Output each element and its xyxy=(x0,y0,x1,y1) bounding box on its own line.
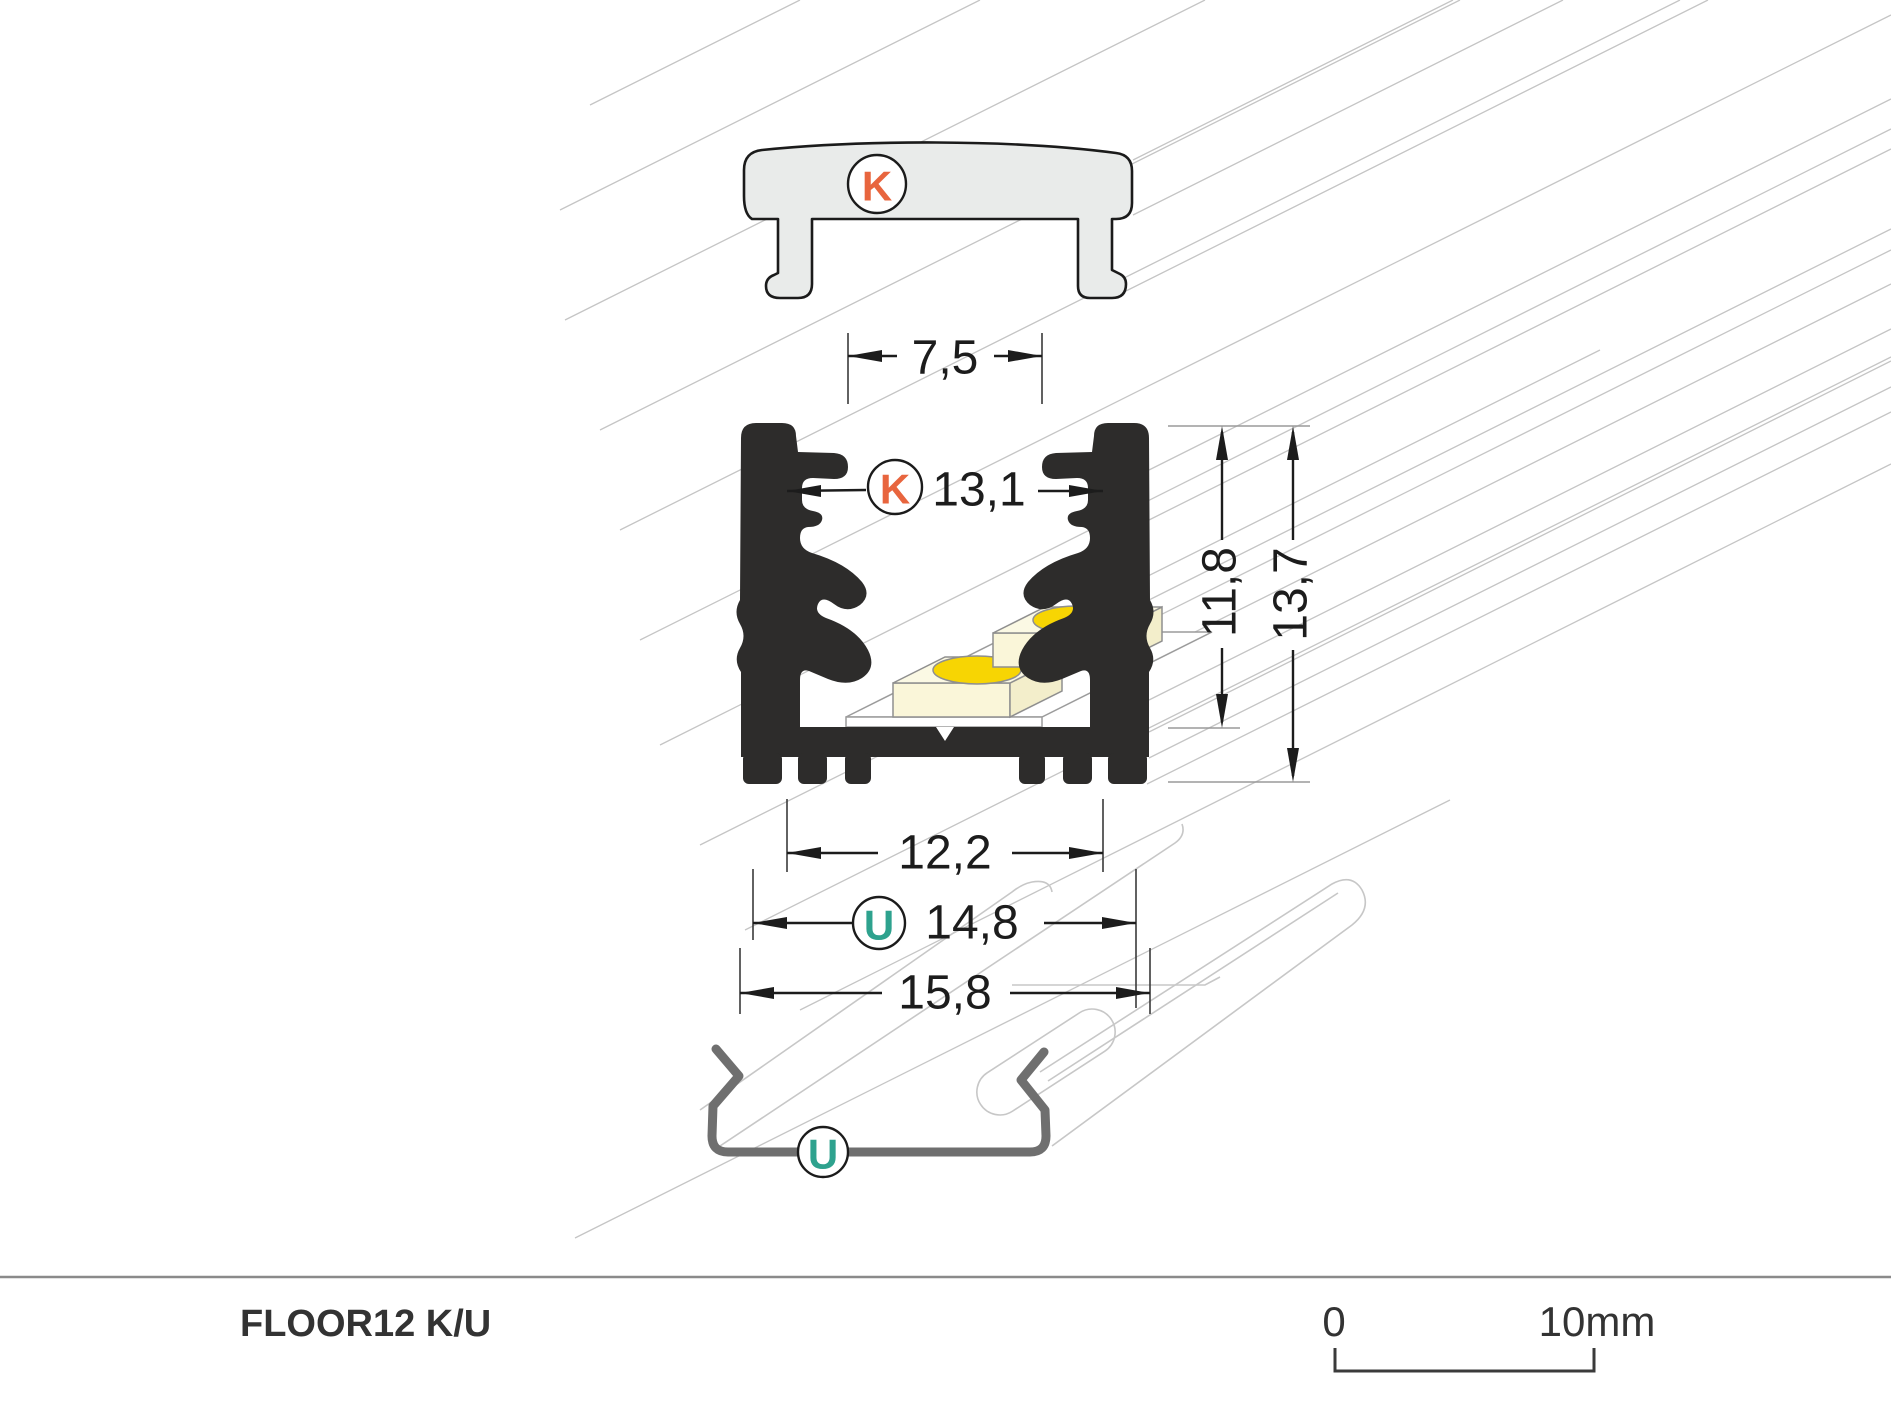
scale-bracket xyxy=(1335,1348,1594,1371)
scale-start-label: 0 xyxy=(1322,1298,1345,1345)
dimension-slot-width: 7,5 xyxy=(848,332,1042,405)
clip-badge-letter: U xyxy=(808,1131,838,1178)
cover-dim-badge-letter: K xyxy=(880,466,910,513)
scale-bar: 0 10mm xyxy=(1322,1298,1655,1371)
led-pcb-front xyxy=(846,717,1042,727)
dimension-cover-width-value: 13,1 xyxy=(932,464,1025,517)
clip-section-shape xyxy=(712,1049,1046,1152)
dimension-slot-width-value: 7,5 xyxy=(912,332,979,385)
drawing-sheet: K 7,5 xyxy=(0,0,1891,1419)
cover-dim-badge: K xyxy=(868,460,922,514)
clip-dim-badge-letter: U xyxy=(864,902,894,949)
dimension-base-width-value: 15,8 xyxy=(898,967,991,1020)
profile-left-wall xyxy=(737,423,872,757)
profile-feet xyxy=(743,753,1147,784)
cover-profile-shape xyxy=(744,142,1132,298)
product-name: FLOOR12 K/U xyxy=(240,1303,491,1345)
dimension-inner-width-value: 12,2 xyxy=(898,827,991,880)
dimension-inner-height-value: 11,8 xyxy=(1194,547,1247,637)
dimension-inner-width: 12,2 xyxy=(787,799,1103,880)
cover-label-badge: K xyxy=(848,155,906,213)
mounting-clip-view: U xyxy=(712,1049,1046,1178)
clip-label-badge: U xyxy=(798,1127,848,1178)
technical-drawing: K 7,5 xyxy=(0,0,1891,1419)
cover-profile-view: K xyxy=(744,142,1132,298)
clip-dim-badge: U xyxy=(853,897,905,949)
dimension-outer-height-value: 13,7 xyxy=(1265,547,1318,640)
scale-end-label: 10mm xyxy=(1539,1298,1656,1345)
cover-badge-letter: K xyxy=(862,163,892,210)
footer: FLOOR12 K/U 0 10mm xyxy=(0,1277,1891,1371)
dimension-outer-width-value: 14,8 xyxy=(925,897,1018,950)
